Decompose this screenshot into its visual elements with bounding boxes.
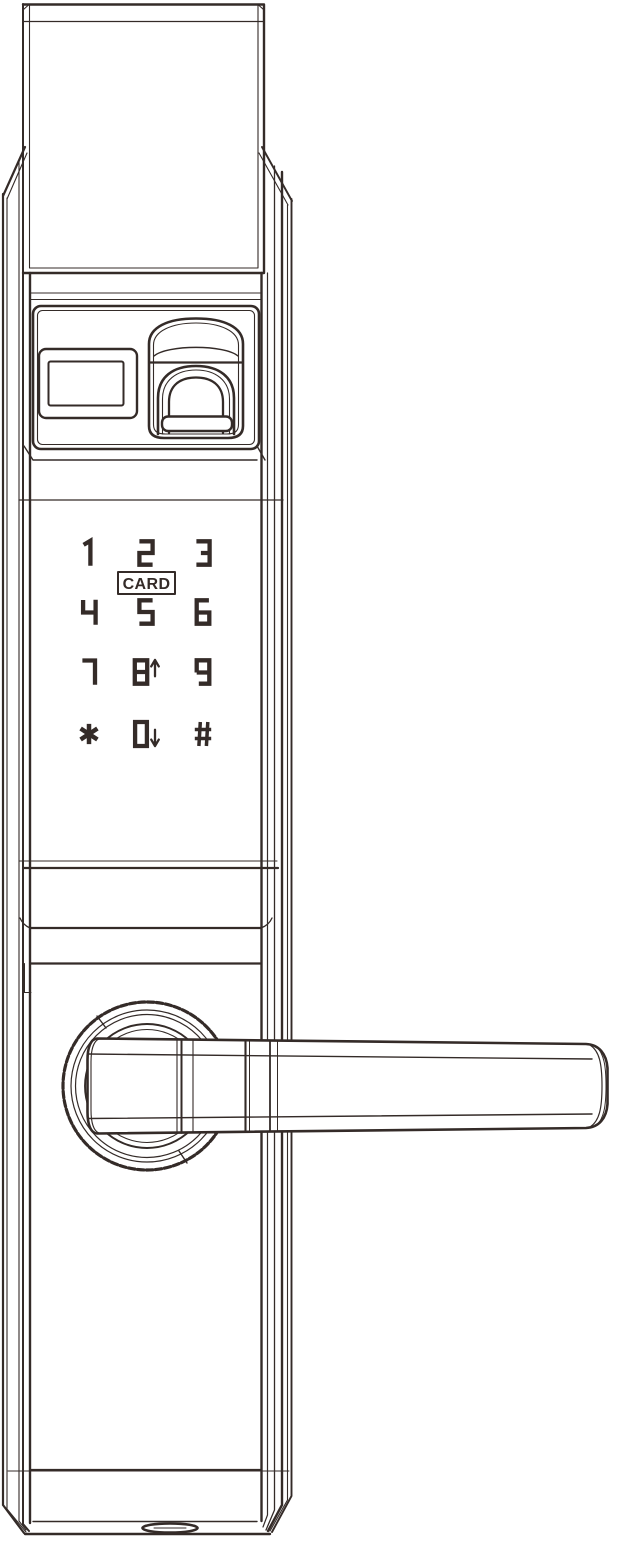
key-glyph-7 <box>82 661 95 685</box>
handle-lever[interactable] <box>88 1039 608 1134</box>
smart-lock-figure: CARD <box>0 0 617 1541</box>
sensor-top-arc <box>154 347 238 356</box>
key-glyph-8 <box>135 660 147 683</box>
display-bezel <box>39 349 137 418</box>
key-glyph-1 <box>84 541 91 566</box>
key-glyph-hash <box>195 722 211 746</box>
key-glyph-6 <box>197 600 210 623</box>
lock-drawing: CARD <box>0 0 617 1541</box>
key-glyph-4 <box>83 600 96 625</box>
keypad: CARD <box>81 541 212 746</box>
key-0[interactable] <box>135 722 159 746</box>
key-8[interactable] <box>135 660 159 684</box>
lever-outline <box>88 1039 608 1134</box>
display-window <box>39 349 137 418</box>
down-arrow-icon <box>151 730 159 746</box>
card-reader-label[interactable]: CARD <box>118 572 175 594</box>
lock-body <box>3 4 292 1534</box>
top-mount-plate <box>23 5 264 274</box>
bottom-cable-port <box>143 1523 198 1532</box>
key-1[interactable] <box>84 541 91 566</box>
key-glyph-0 <box>135 722 147 746</box>
key-6[interactable] <box>197 600 210 623</box>
key-glyph-9 <box>197 660 210 683</box>
sensor-base-bar <box>162 417 232 432</box>
card-label-text: CARD <box>123 576 171 593</box>
key-star[interactable] <box>81 724 98 744</box>
key-7[interactable] <box>82 661 95 685</box>
key-5[interactable] <box>139 600 152 623</box>
up-arrow-icon <box>151 660 159 676</box>
fingerprint-sensor[interactable] <box>149 319 243 439</box>
key-glyph-star <box>81 724 98 744</box>
display-screen <box>49 362 124 406</box>
key-glyph-2 <box>139 541 152 564</box>
key-2[interactable] <box>139 541 152 564</box>
key-glyph-3 <box>196 541 209 564</box>
key-9[interactable] <box>197 660 210 683</box>
key-3[interactable] <box>196 541 209 564</box>
key-glyph-5 <box>139 600 152 623</box>
fingerprint-panel <box>33 306 259 449</box>
key-4[interactable] <box>83 600 96 625</box>
key-hash[interactable] <box>195 722 211 746</box>
